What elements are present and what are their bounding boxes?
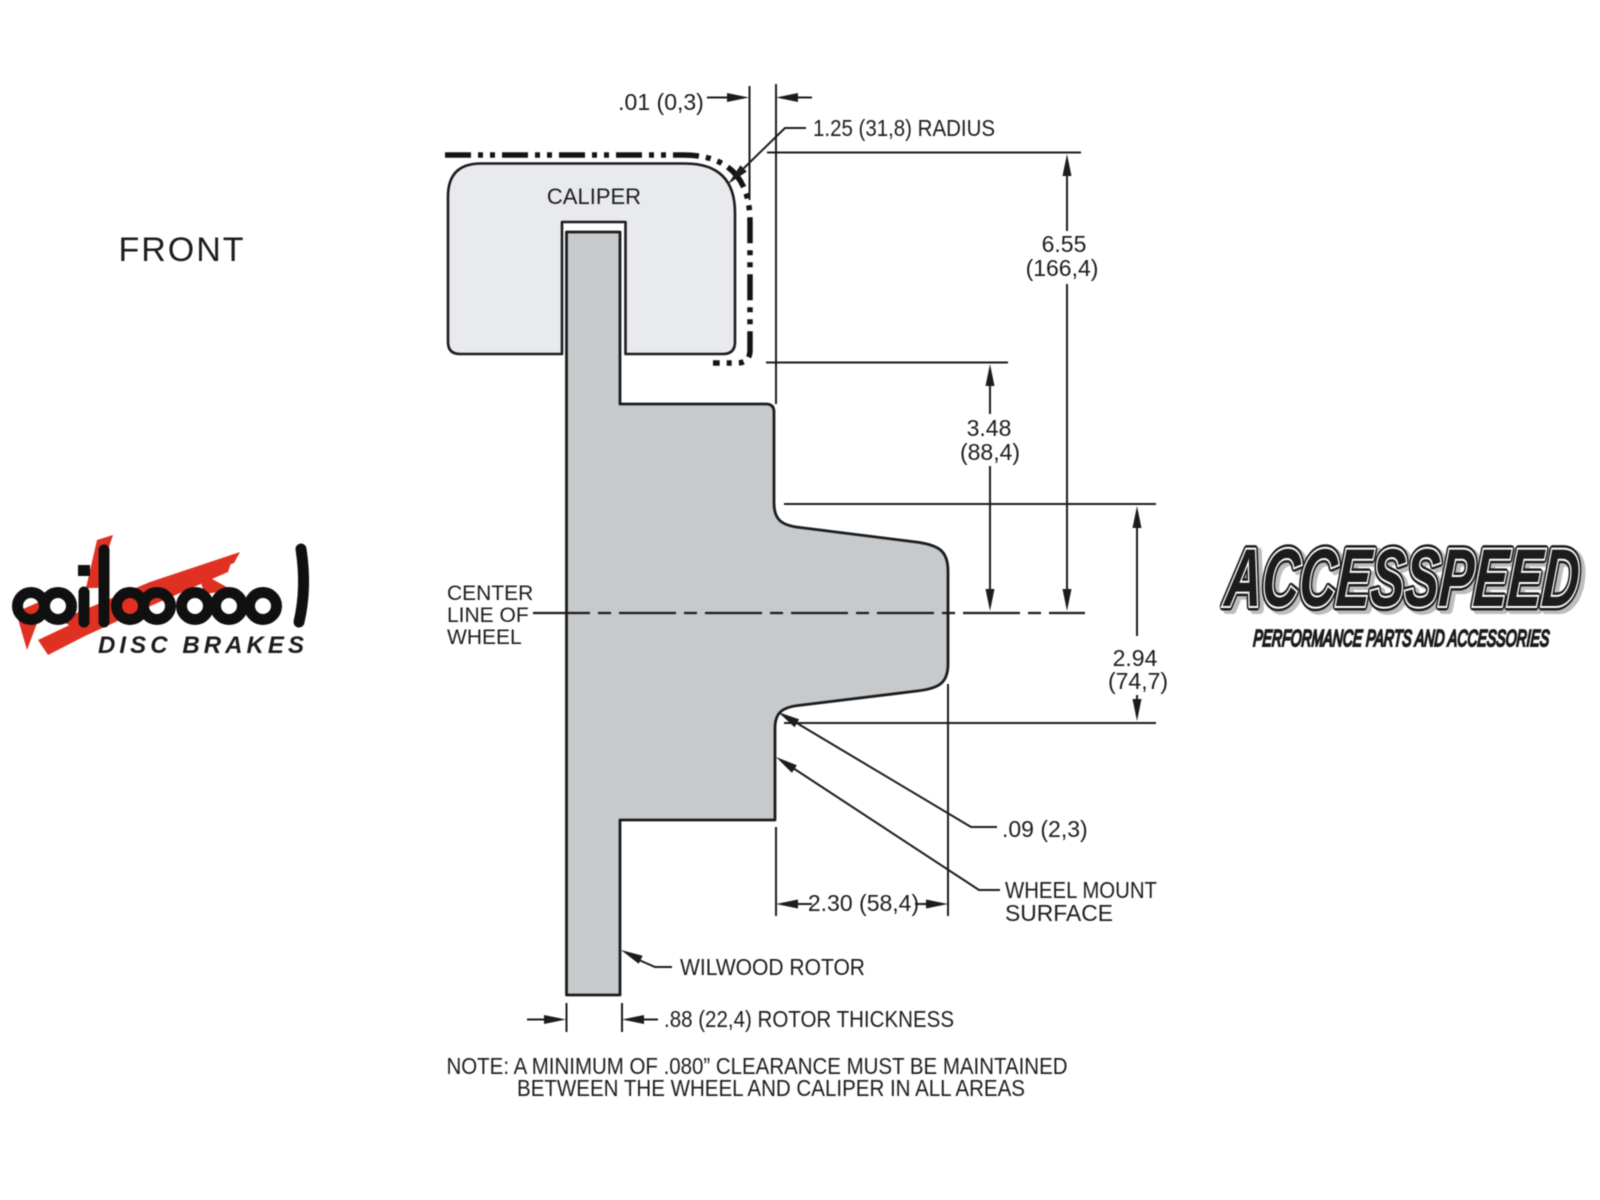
svg-text:2.30 (58,4): 2.30 (58,4) (808, 890, 919, 916)
svg-text:LINE OF: LINE OF (447, 604, 529, 627)
svg-text:CENTER: CENTER (447, 582, 533, 605)
svg-text:(74,7): (74,7) (1108, 668, 1168, 694)
svg-text:.09 (2,3): .09 (2,3) (1002, 816, 1088, 842)
svg-text:WILWOOD ROTOR: WILWOOD ROTOR (680, 954, 865, 980)
svg-text:FRONT: FRONT (118, 231, 245, 269)
svg-text:.88 (22,4) ROTOR THICKNESS: .88 (22,4) ROTOR THICKNESS (664, 1006, 954, 1032)
svg-text:BETWEEN THE WHEEL AND CALIPER: BETWEEN THE WHEEL AND CALIPER IN ALL ARE… (517, 1075, 1025, 1101)
svg-text:ACCESSPEED: ACCESSPEED (1221, 533, 1583, 624)
svg-text:PERFORMANCE PARTS AND ACCESSOR: PERFORMANCE PARTS AND ACCESSORIES (1252, 625, 1550, 651)
svg-text:6.55: 6.55 (1042, 231, 1087, 257)
svg-text:.01 (0,3): .01 (0,3) (618, 89, 704, 115)
svg-text:CALIPER: CALIPER (547, 184, 641, 209)
svg-text:(88,4): (88,4) (960, 439, 1020, 465)
svg-text:1.25 (31,8) RADIUS: 1.25 (31,8) RADIUS (813, 115, 995, 141)
svg-text:3.48: 3.48 (967, 415, 1012, 441)
svg-text:(166,4): (166,4) (1026, 255, 1099, 281)
svg-text:WHEEL: WHEEL (447, 626, 522, 649)
svg-text:SURFACE: SURFACE (1005, 900, 1113, 926)
